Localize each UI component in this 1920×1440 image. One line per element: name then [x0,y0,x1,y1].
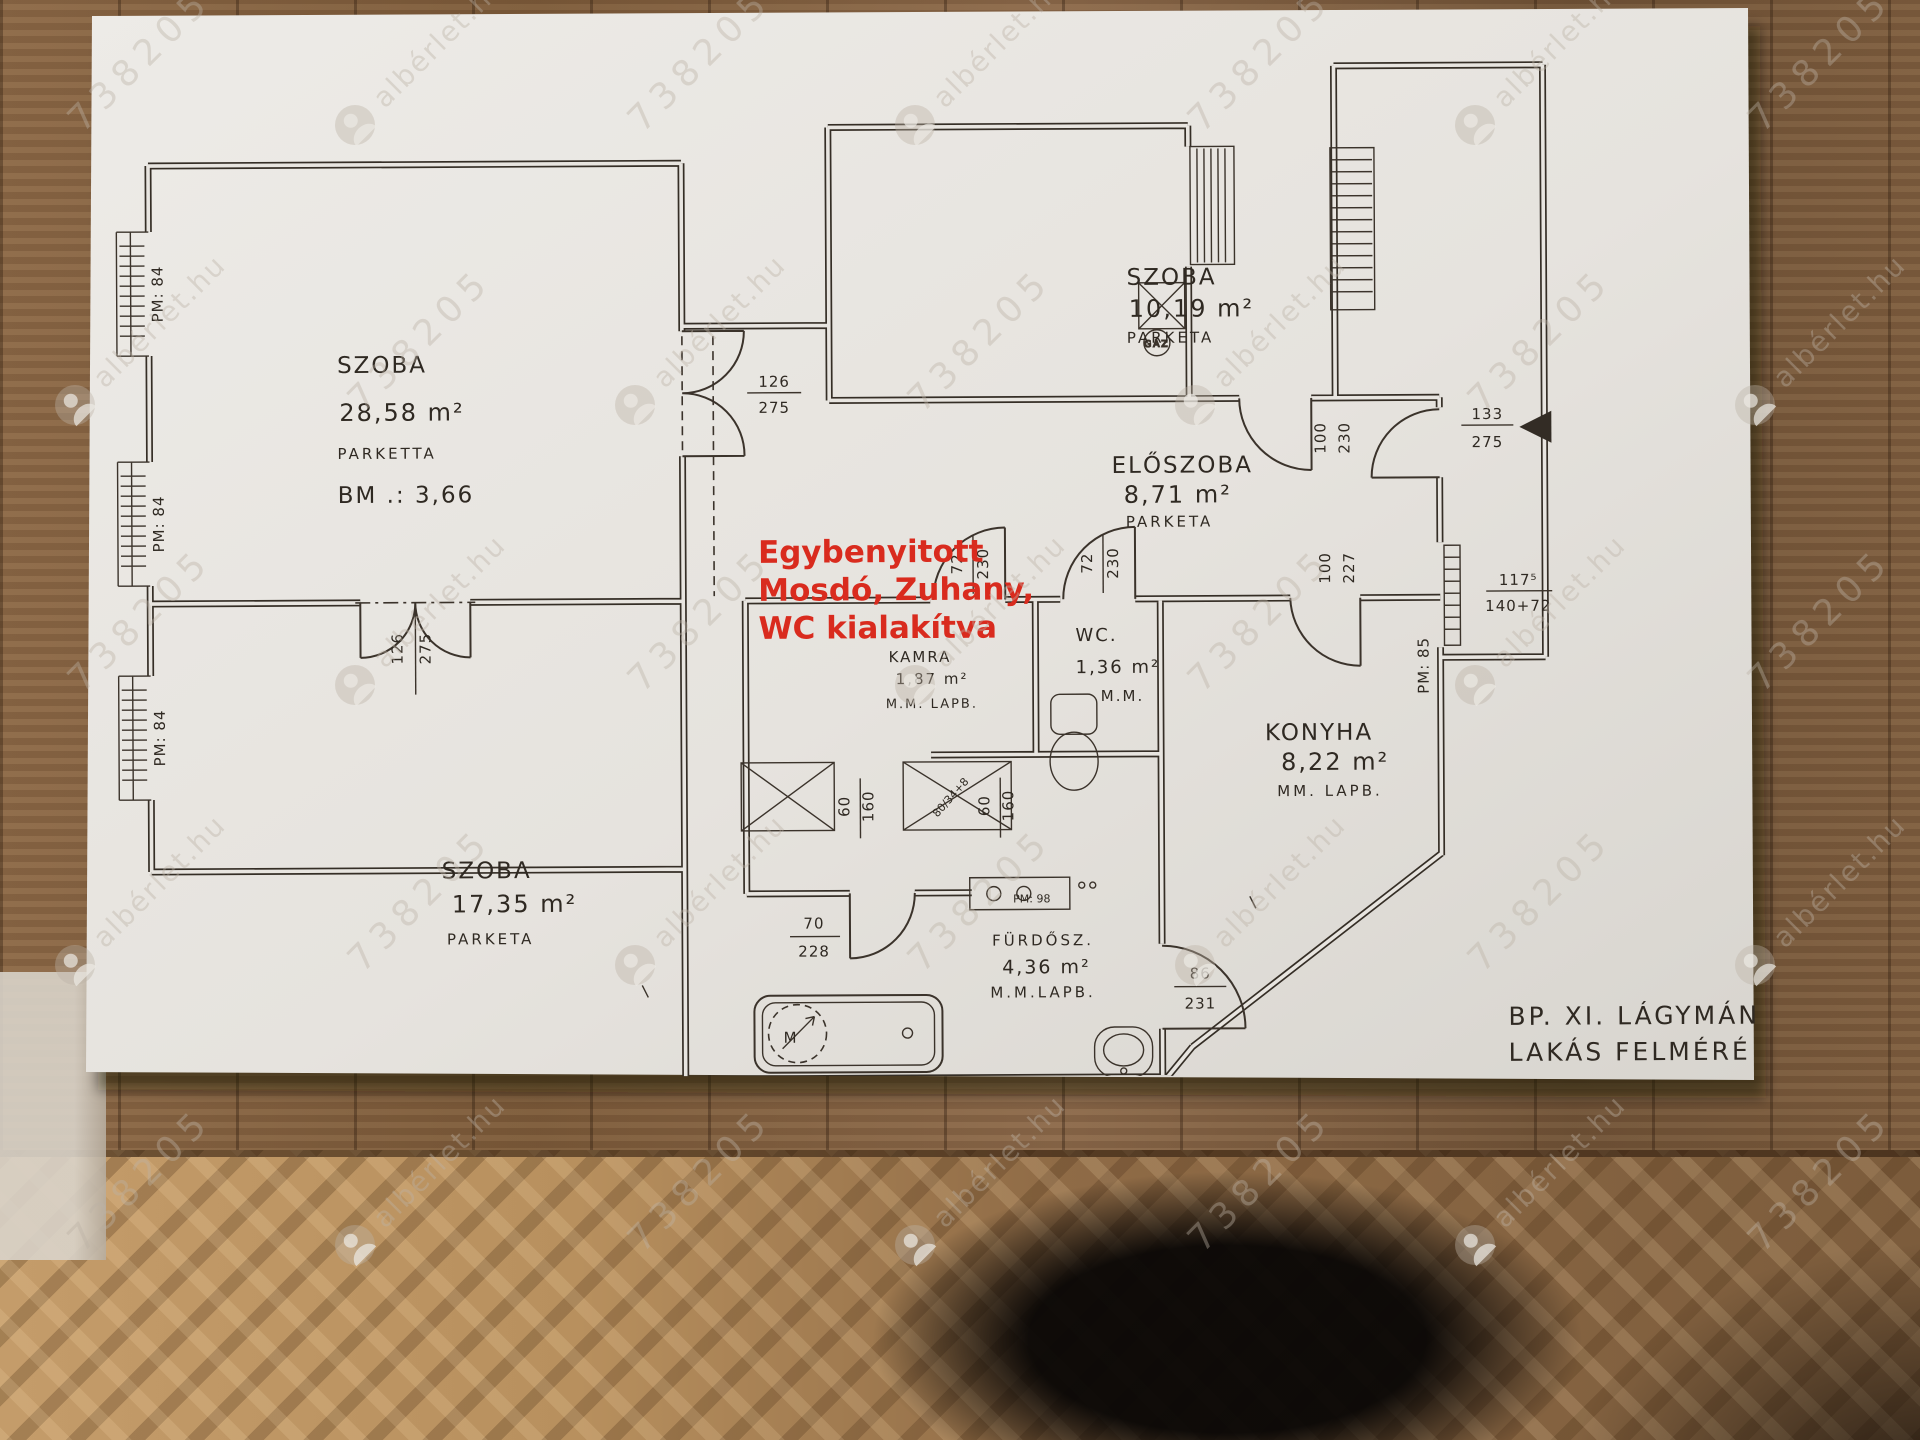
svg-text:70: 70 [803,915,824,933]
window-dim-3: PM: 84 [151,709,169,766]
svg-text:28,58 m²: 28,58 m² [339,398,464,427]
svg-text:86: 86 [1190,964,1211,982]
svg-text:PARKETTA: PARKETTA [337,445,436,464]
svg-text:275: 275 [758,399,790,417]
svg-text:PARKETA: PARKETA [1126,512,1213,530]
floor-plan-photo: PM: 84 PM: 84 PM: 84 PM: 85 117⁵ 140+72 [0,0,1920,1440]
svg-text:PARKETA: PARKETA [447,930,534,948]
svg-text:133: 133 [1471,405,1503,423]
svg-text:SZOBA: SZOBA [1127,264,1217,290]
svg-text:M.M. LAPB.: M.M. LAPB. [886,697,978,712]
svg-text:275: 275 [1472,433,1504,451]
svg-text:M: M [784,1029,798,1047]
window-dim-2: PM: 84 [150,495,168,552]
svg-text:228: 228 [798,942,830,960]
svg-text:1,87 m²: 1,87 m² [896,670,969,688]
svg-text:8,71 m²: 8,71 m² [1124,480,1232,509]
svg-text:SZOBA: SZOBA [337,353,427,379]
svg-text:231: 231 [1185,994,1217,1012]
svg-text:230: 230 [1104,547,1122,579]
svg-text:60: 60 [835,796,853,817]
svg-text:227: 227 [1340,552,1358,584]
svg-text:FÜRDŐSZ.: FÜRDŐSZ. [992,929,1094,950]
room-label-konyha: KONYHA 8,22 m² MM. LAPB. [1265,720,1389,801]
svg-text:100: 100 [1311,422,1329,454]
svg-text:17,35 m²: 17,35 m² [452,890,577,919]
svg-text:126: 126 [758,373,790,391]
svg-text:8,22 m²: 8,22 m² [1281,748,1389,777]
svg-text:126: 126 [388,633,406,665]
kitchen-window-h: 140+72 [1485,597,1551,615]
svg-text:M.M.: M.M. [1101,687,1145,705]
svg-text:Egybenyitott: Egybenyitott [758,534,984,571]
svg-text:LAKÁS FELMÉRÉ: LAKÁS FELMÉRÉ [1509,1037,1751,1067]
svg-text:10,19 m²: 10,19 m² [1129,294,1254,323]
svg-text:Mosdó, Zuhany,: Mosdó, Zuhany, [758,571,1034,608]
svg-text:1,36 m²: 1,36 m² [1076,657,1161,678]
svg-text:SZOBA: SZOBA [442,858,532,884]
room-label-furdo: FÜRDŐSZ. 4,36 m² M.M.LAPB. [990,929,1096,1002]
svg-text:KONYHA: KONYHA [1265,720,1373,747]
svg-text:M.M.LAPB.: M.M.LAPB. [990,983,1096,1002]
svg-text:60: 60 [975,795,993,816]
pm98-label: PM: 98 [1013,892,1050,905]
svg-text:100: 100 [1316,552,1334,584]
svg-text:160: 160 [999,790,1017,822]
svg-text:/1M=2.0CM/: /1M=2.0CM/ [1499,1109,1649,1134]
svg-text:230: 230 [1335,422,1353,454]
svg-text:4,36 m²: 4,36 m² [1002,956,1091,978]
svg-text:275: 275 [416,633,434,665]
svg-text:MM. LAPB.: MM. LAPB. [1277,782,1383,801]
svg-text:WC kialakítva: WC kialakítva [758,610,997,647]
svg-text:160: 160 [859,790,877,822]
svg-text:BM .: 3,66: BM .: 3,66 [338,482,475,509]
svg-text:PARKETA: PARKETA [1127,328,1214,346]
svg-text:WC.: WC. [1075,625,1117,646]
scale-bar [1421,1128,1628,1157]
kitchen-window-pm: PM: 85 [1414,637,1432,694]
svg-text:ELŐSZOBA: ELŐSZOBA [1111,450,1253,479]
svg-text:KAMRA: KAMRA [889,648,952,666]
photo-scene: PM: 84 PM: 84 PM: 84 PM: 85 117⁵ 140+72 [0,0,1920,1440]
kitchen-window-w: 117⁵ [1499,571,1538,589]
window-dim-1: PM: 84 [149,265,167,322]
svg-text:BP. XI. LÁGYMÁN: BP. XI. LÁGYMÁN [1508,1001,1760,1031]
svg-text:72: 72 [1078,553,1096,574]
